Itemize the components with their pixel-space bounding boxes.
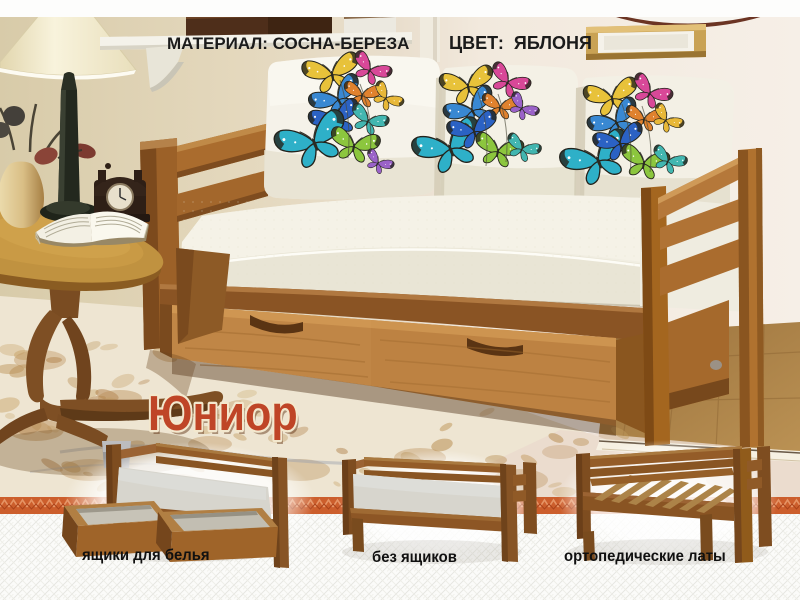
svg-text:Юниор: Юниор <box>148 385 298 440</box>
